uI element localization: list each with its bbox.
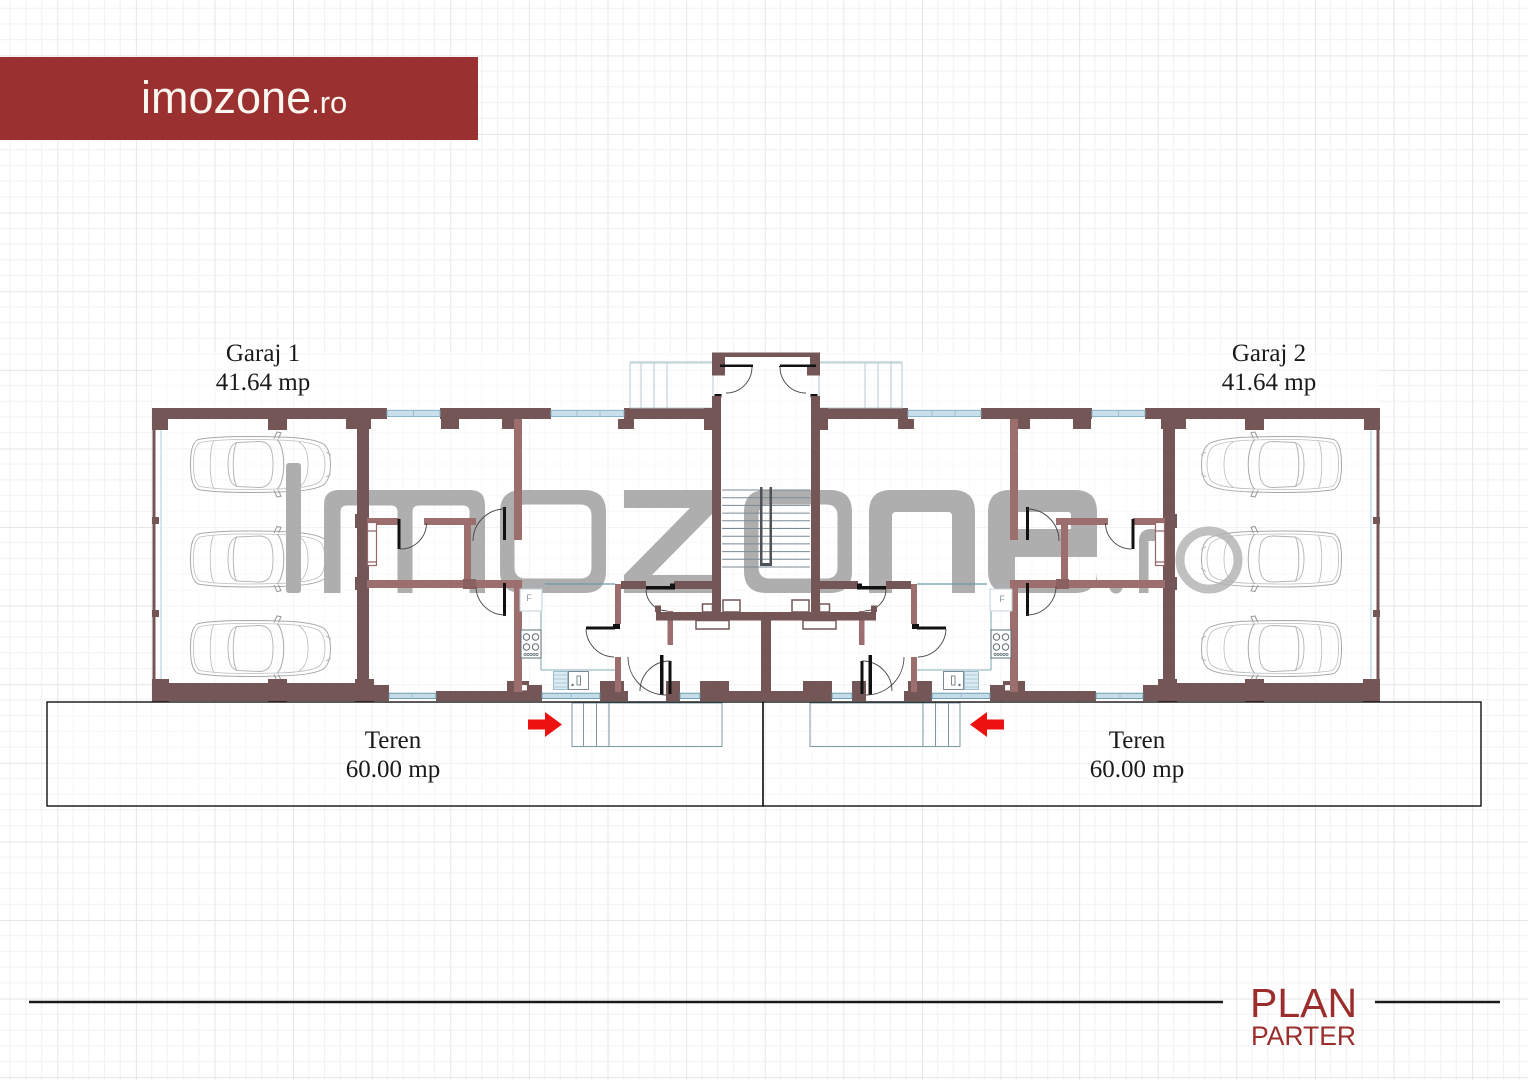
svg-text:PLAN: PLAN [1250,980,1357,1026]
svg-text:Teren: Teren [1109,727,1166,754]
svg-text:Garaj 2: Garaj 2 [1232,340,1306,367]
svg-text:Garaj 1: Garaj 1 [226,340,300,367]
svg-text:PARTER: PARTER [1251,1021,1356,1051]
svg-text:F: F [526,593,532,603]
svg-text:41.64 mp: 41.64 mp [216,369,310,396]
svg-text:60.00 mp: 60.00 mp [346,756,440,783]
svg-text:41.64 mp: 41.64 mp [1222,369,1316,396]
svg-text:Teren: Teren [365,727,422,754]
svg-text:F: F [999,594,1005,604]
svg-text:60.00 mp: 60.00 mp [1090,756,1184,783]
